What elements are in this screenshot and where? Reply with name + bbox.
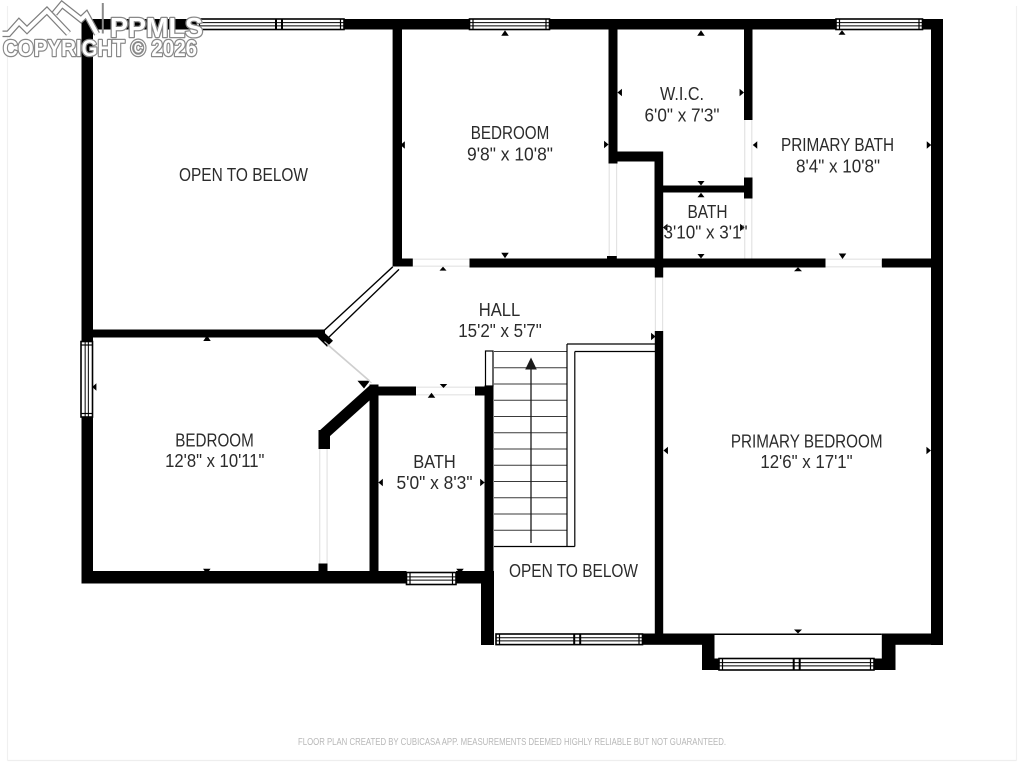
svg-text:FLOOR PLAN CREATED BY CUBICASA: FLOOR PLAN CREATED BY CUBICASA APP. MEAS… (298, 737, 726, 748)
svg-text:5'0" x 8'3": 5'0" x 8'3" (397, 472, 473, 493)
svg-text:6'0" x 7'3": 6'0" x 7'3" (645, 105, 720, 126)
svg-text:12'6" x 17'1": 12'6" x 17'1" (760, 451, 852, 472)
svg-text:BATH: BATH (413, 451, 456, 472)
svg-text:HALL: HALL (479, 299, 521, 320)
svg-text:OPEN TO BELOW: OPEN TO BELOW (179, 164, 309, 185)
svg-text:BEDROOM: BEDROOM (471, 122, 550, 143)
svg-text:12'8" x 10'11": 12'8" x 10'11" (165, 450, 264, 471)
svg-text:15'2" x 5'7": 15'2" x 5'7" (458, 320, 542, 341)
svg-text:9'8" x 10'8": 9'8" x 10'8" (467, 144, 553, 165)
svg-text:8'4" x 10'8": 8'4" x 10'8" (796, 156, 880, 177)
svg-text:W.I.C.: W.I.C. (660, 83, 704, 104)
svg-text:PRIMARY BEDROOM: PRIMARY BEDROOM (731, 431, 883, 452)
svg-text:3'10" x 3'1": 3'10" x 3'1" (664, 222, 748, 243)
svg-text:OPEN TO BELOW: OPEN TO BELOW (509, 560, 639, 581)
svg-text:BATH: BATH (688, 201, 728, 222)
svg-text:COPYRIGHT © 2026: COPYRIGHT © 2026 (3, 35, 197, 61)
svg-text:BEDROOM: BEDROOM (175, 430, 254, 451)
svg-text:PRIMARY BATH: PRIMARY BATH (781, 134, 894, 155)
